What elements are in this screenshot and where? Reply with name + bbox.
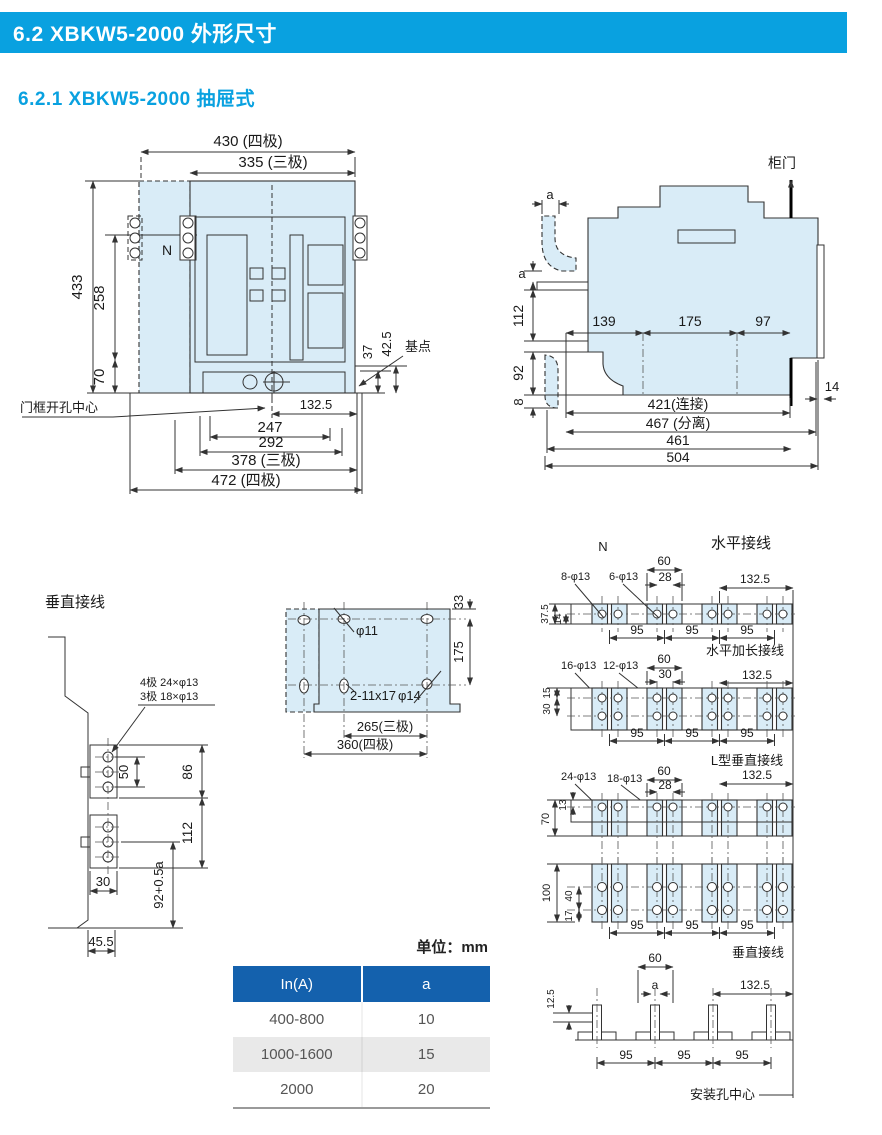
dim-95: 95	[740, 623, 754, 637]
horizontal-wiring-label: 水平接线	[711, 535, 771, 552]
cabinet-door-label: 柜门	[768, 155, 796, 171]
dim-33: 33	[451, 595, 466, 609]
dim-132-5-2: 132.5	[742, 668, 772, 682]
dim-8: 8	[511, 398, 526, 405]
dim-15: 15	[542, 687, 553, 699]
mounting-plate-drawing: φ11 2-11x17 φ14 33 175 265(三极) 360(四极)	[258, 572, 493, 784]
dim-95: 95	[630, 623, 644, 637]
side-view-body	[535, 180, 824, 408]
dim-378-3p: 378 (三极)	[231, 452, 300, 469]
dim-86: 86	[179, 764, 195, 780]
dim-175b: 175	[451, 641, 466, 663]
dim-16-phi13: 16-φ13	[561, 660, 596, 672]
dim-12-5: 12.5	[546, 989, 557, 1009]
holes-4p-label: 4极 24×φ13	[140, 675, 198, 689]
dim-50: 50	[116, 765, 131, 779]
dim-30b: 30	[542, 703, 553, 715]
dim-a-left: a	[518, 266, 526, 281]
dim-70b: 70	[540, 813, 552, 825]
dim-472-4p: 472 (四极)	[211, 472, 280, 489]
front-view-body	[85, 181, 385, 398]
spec-table-header-in: In(A)	[233, 966, 363, 1002]
n-pole-label-2: N	[598, 539, 607, 554]
n-pole-label: N	[162, 242, 172, 258]
l-vertical-wiring-diagram: 24-φ13 18-φ13 60 28 132.5 70 13	[540, 764, 795, 863]
dim-slots: 2-11x17	[350, 688, 396, 703]
dim-95: 95	[685, 726, 699, 740]
dim-95: 95	[630, 726, 644, 740]
vertical-wiring-drawing: 垂直接线 4极 24×φ13 3极 18×φ13 50 86 112 92+0.…	[25, 585, 255, 985]
dim-467: 467 (分离)	[646, 415, 711, 431]
dim-139: 139	[592, 313, 616, 329]
dim-95: 95	[630, 918, 644, 932]
units-note: 单位：mm	[398, 936, 488, 957]
dim-28-3: 28	[658, 778, 672, 792]
dim-95: 95	[677, 1048, 691, 1062]
dim-95: 95	[740, 918, 754, 932]
l-vertical-face-diagram: 100 40 17 95 95 95 垂直接线	[541, 857, 795, 960]
dim-360-4p: 360(四极)	[337, 737, 393, 752]
dim-60-5: 60	[648, 951, 662, 965]
base-point-label: 基点	[405, 339, 431, 354]
l-vertical-wiring-label: L型垂直接线	[711, 753, 783, 768]
cell-in-range: 1000-1600	[233, 1037, 363, 1072]
dim-60-1: 60	[657, 554, 671, 568]
dim-97: 97	[755, 313, 771, 329]
section-title: 6.2 XBKW5-2000 外形尺寸	[0, 18, 277, 48]
cell-a-value: 10	[363, 1002, 491, 1037]
side-view-drawing: 柜门 a a 112 92 8 139 175 97 421(连接) 467 (…	[500, 130, 882, 505]
cell-a-value: 20	[363, 1072, 491, 1107]
table-row: 1000-1600 15	[233, 1037, 490, 1072]
dim-504: 504	[666, 449, 690, 465]
dim-175: 175	[678, 313, 702, 329]
dim-14: 14	[825, 379, 839, 394]
dim-258: 258	[91, 285, 108, 310]
dim-132-5-5: 132.5	[740, 978, 770, 992]
dim-70: 70	[91, 369, 108, 386]
horizontal-wiring-diagram: N 水平接线 60 28 132.5 8-φ13 6-φ13 37.5 14	[540, 535, 795, 658]
front-view-drawing: 430 (四极) 335 (三极) 433 258 70 N 37 42.5 基…	[25, 120, 475, 502]
dim-17: 17	[564, 910, 575, 922]
dim-45-5: 45.5	[88, 934, 113, 949]
section-header-bar: 6.2 XBKW5-2000 外形尺寸	[0, 12, 847, 53]
dim-14b: 14	[553, 613, 564, 625]
dim-92: 92	[510, 365, 526, 381]
vertical-wiring-diagram-right: 60 a 132.5 12.5 95 95 95 安装孔中心	[546, 951, 793, 1102]
dim-95: 95	[740, 726, 754, 740]
dim-24-phi13: 24-φ13	[561, 771, 596, 783]
dim-18-phi13: 18-φ13	[607, 773, 642, 785]
dim-132-5: 132.5	[300, 397, 333, 412]
dim-37: 37	[360, 345, 375, 359]
dim-95: 95	[735, 1048, 749, 1062]
dim-phi14: φ14	[398, 688, 421, 703]
dim-433: 433	[69, 274, 86, 299]
vertical-wiring-title: 垂直接线	[45, 594, 105, 611]
dim-37-5: 37.5	[540, 604, 551, 624]
dim-265-3p: 265(三极)	[357, 719, 413, 734]
dim-8-phi13: 8-φ13	[561, 571, 590, 583]
horizontal-ext-wiring-diagram: 16-φ13 12-φ13 60 30 132.5 15 30 95 95	[542, 652, 795, 768]
dim-60-2: 60	[657, 652, 671, 666]
table-row: 400-800 10	[233, 1002, 490, 1037]
dim-95: 95	[685, 623, 699, 637]
door-frame-center-label: 门框开孔中心	[20, 400, 98, 415]
dim-132-5-1: 132.5	[740, 572, 770, 586]
horizontal-ext-wiring-label: 水平加长接线	[706, 643, 784, 658]
dim-60-3: 60	[657, 764, 671, 778]
dim-phi11: φ11	[356, 623, 378, 638]
dim-42-5: 42.5	[379, 331, 394, 356]
dim-461: 461	[666, 432, 690, 448]
dim-95: 95	[619, 1048, 633, 1062]
mount-hole-center-label: 安装孔中心	[690, 1087, 755, 1102]
dim-112: 112	[510, 305, 526, 328]
cell-in-range: 400-800	[233, 1002, 363, 1037]
spec-table-header-row: In(A) a	[233, 966, 490, 1002]
table-row: 2000 20	[233, 1072, 490, 1107]
dim-6-phi13: 6-φ13	[609, 571, 638, 583]
dim-92-05a: 92+0.5a	[151, 861, 166, 909]
dim-30: 30	[96, 874, 110, 889]
dim-95: 95	[685, 918, 699, 932]
dim-100: 100	[541, 884, 553, 902]
dim-430-4p: 430 (四极)	[213, 133, 282, 150]
dim-421: 421(连接)	[648, 396, 709, 412]
holes-3p-label: 3极 18×φ13	[140, 689, 198, 703]
cell-a-value: 15	[363, 1037, 491, 1072]
dim-112b: 112	[179, 822, 195, 845]
subsection-title: 6.2.1 XBKW5-2000 抽屉式	[18, 84, 255, 111]
dim-335-3p: 335 (三极)	[238, 154, 307, 171]
spec-table: In(A) a 400-800 10 1000-1600 15 2000 20	[233, 966, 490, 1109]
dim-28-1: 28	[658, 570, 672, 584]
cell-in-range: 2000	[233, 1072, 363, 1107]
dim-12-phi13: 12-φ13	[603, 660, 638, 672]
vertical-wiring-label-2: 垂直接线	[732, 945, 784, 960]
dim-13: 13	[558, 799, 569, 811]
dim-292: 292	[258, 434, 283, 451]
dim-40: 40	[564, 890, 575, 902]
dim-a-top: a	[546, 187, 554, 202]
spec-table-header-a: a	[363, 966, 491, 1002]
busbar-arrangements-drawing: N 水平接线 60 28 132.5 8-φ13 6-φ13 37.5 14	[545, 533, 882, 1135]
dim-30-2: 30	[658, 667, 672, 681]
dim-132-5-3: 132.5	[742, 768, 772, 782]
